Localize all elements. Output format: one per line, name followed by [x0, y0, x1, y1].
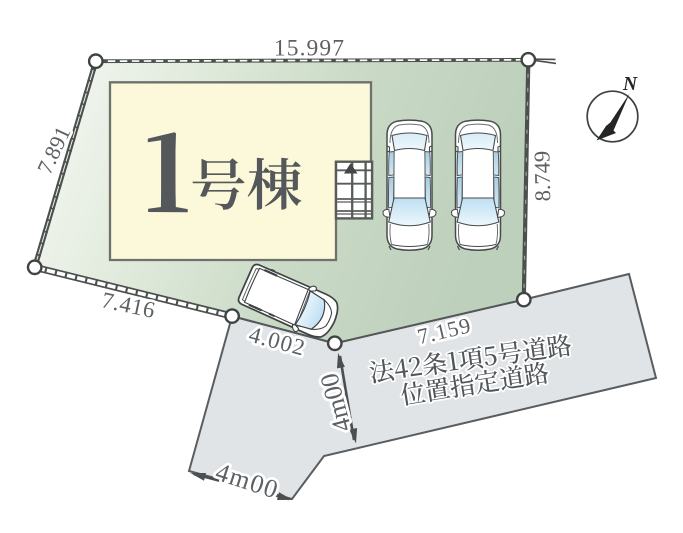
svg-text:8.749: 8.749 — [529, 151, 555, 202]
svg-text:15.997: 15.997 — [274, 36, 345, 62]
svg-text:N: N — [622, 74, 638, 95]
